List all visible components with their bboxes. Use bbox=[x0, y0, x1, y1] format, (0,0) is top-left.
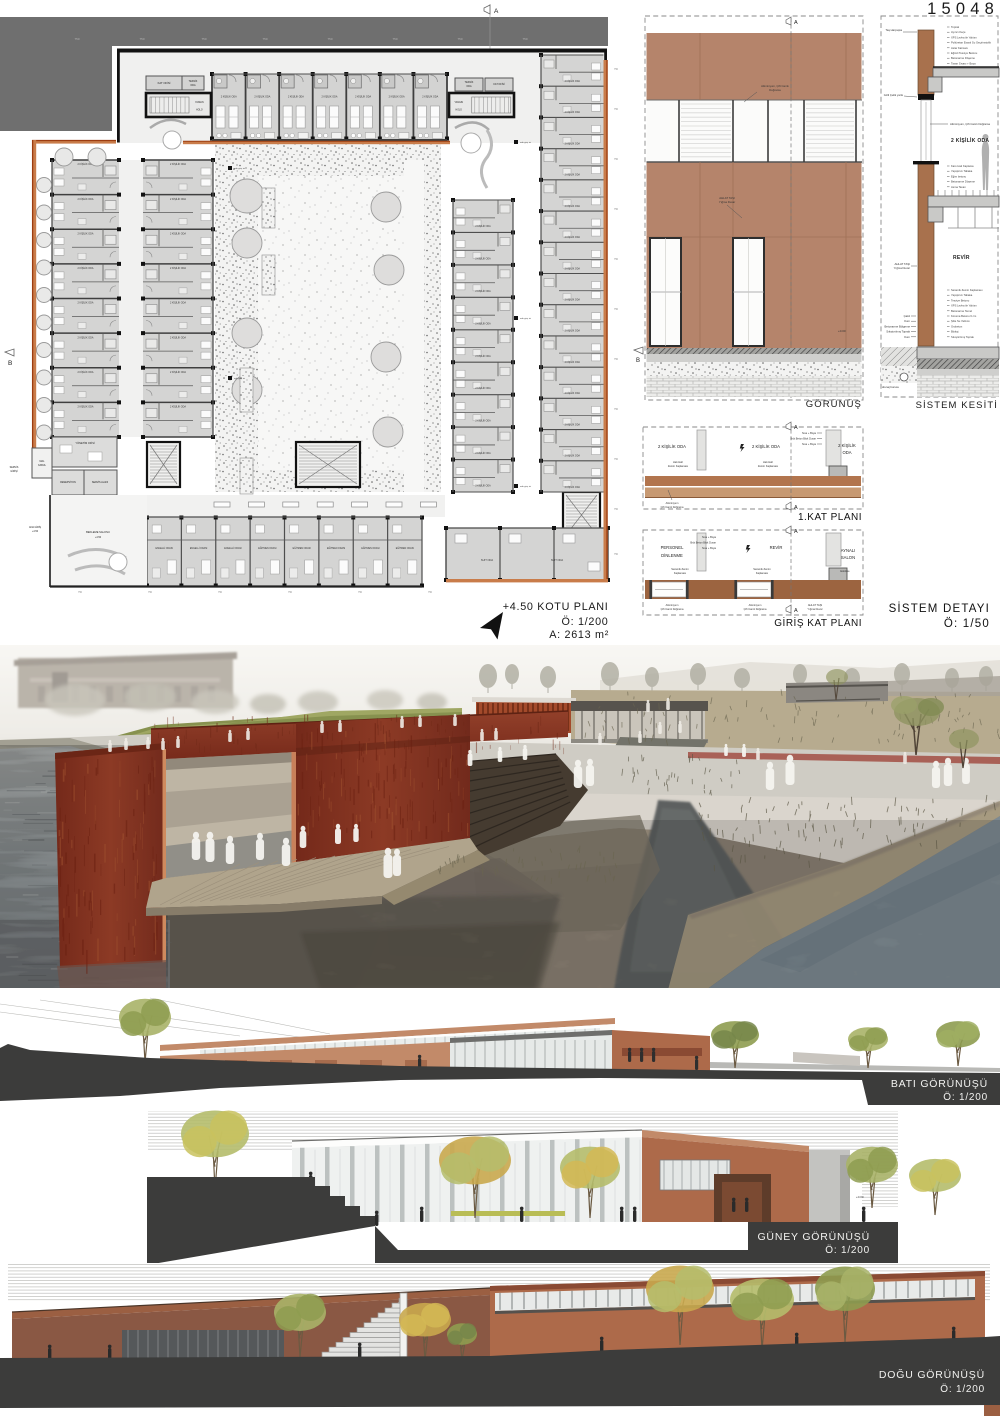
svg-text:750: 750 bbox=[139, 37, 144, 41]
svg-text:Çift Camlı Doğrama: Çift Camlı Doğrama bbox=[744, 607, 767, 611]
svg-text:ODA: ODA bbox=[466, 85, 472, 88]
svg-text:2 KİŞİLİK ODA: 2 KİŞİLİK ODA bbox=[389, 96, 405, 99]
svg-text:Gizli Çelik yarık: Gizli Çelik yarık bbox=[884, 93, 904, 97]
svg-text:750: 750 bbox=[74, 37, 79, 41]
svg-text:oda giriş izi: oda giriş izi bbox=[234, 377, 245, 380]
svg-text:Blokaj: Blokaj bbox=[951, 330, 959, 334]
svg-text:Alüminyum: Alüminyum bbox=[666, 501, 679, 505]
svg-text:Yığma Duvar: Yığma Duvar bbox=[894, 266, 910, 270]
svg-text:ODA: ODA bbox=[842, 450, 851, 455]
svg-text:EĞİTMEN ODASI: EĞİTMEN ODASI bbox=[361, 547, 380, 550]
svg-text:Sıva + Boya: Sıva + Boya bbox=[802, 442, 817, 446]
svg-text:750: 750 bbox=[201, 37, 206, 41]
svg-text:750: 750 bbox=[614, 508, 619, 511]
svg-text:Sıva + Boya: Sıva + Boya bbox=[702, 546, 717, 550]
svg-text:Brüt Beton Blok Duvar: Brüt Beton Blok Duvar bbox=[790, 437, 816, 441]
svg-text:Ö: 1/50: Ö: 1/50 bbox=[944, 618, 990, 630]
svg-text:EĞİTMEN ODASI: EĞİTMEN ODASI bbox=[293, 547, 312, 550]
svg-text:Kum: Kum bbox=[904, 335, 910, 339]
svg-text:15048: 15048 bbox=[927, 0, 999, 18]
svg-text:XPS Levha ile Yalıtım: XPS Levha ile Yalıtım bbox=[951, 35, 978, 39]
svg-text:2 KİŞİLİK ODA: 2 KİŞİLİK ODA bbox=[951, 137, 989, 144]
svg-text:ODA: ODA bbox=[190, 84, 196, 87]
svg-text:Çift Camlı Doğrama: Çift Camlı Doğrama bbox=[661, 607, 684, 611]
svg-text:2 KİŞİLİK ODA: 2 KİŞİLİK ODA bbox=[565, 174, 581, 177]
svg-text:A: 2613 m²: A: 2613 m² bbox=[549, 629, 609, 641]
svg-text:2 KİŞİLİK ODA: 2 KİŞİLİK ODA bbox=[475, 387, 491, 390]
svg-text:2 KİŞİLİK ODA: 2 KİŞİLİK ODA bbox=[170, 302, 186, 305]
svg-text:Karo Halı Kaplama: Karo Halı Kaplama bbox=[951, 164, 974, 168]
svg-text:oda giriş izi: oda giriş izi bbox=[520, 141, 531, 144]
svg-text:1.KAT PLANI: 1.KAT PLANI bbox=[798, 512, 862, 523]
svg-text:2 KİŞİLİK ODA: 2 KİŞİLİK ODA bbox=[170, 232, 186, 235]
svg-text:2 KİŞİLİK ODA: 2 KİŞİLİK ODA bbox=[565, 111, 581, 114]
svg-text:2 KİŞİLİK ODA: 2 KİŞİLİK ODA bbox=[78, 406, 94, 409]
svg-text:2 KİŞİLİK: 2 KİŞİLİK bbox=[838, 443, 856, 448]
svg-text:HOLÜ: HOLÜ bbox=[456, 108, 463, 111]
svg-text:Ö: 1/200: Ö: 1/200 bbox=[940, 1383, 985, 1395]
svg-text:Astar Katmanı: Astar Katmanı bbox=[951, 46, 968, 50]
svg-text:TEKNİK: TEKNİK bbox=[465, 81, 474, 84]
svg-text:Zemin Kaplaması: Zemin Kaplaması bbox=[668, 464, 688, 468]
svg-text:2 KİŞİLİK ODA: 2 KİŞİLİK ODA bbox=[170, 163, 186, 166]
svg-text:GÜNEY GÖRÜNÜŞÜ: GÜNEY GÖRÜNÜŞÜ bbox=[757, 1231, 870, 1243]
svg-text:2 KİŞİLİK ODA: 2 KİŞİLİK ODA bbox=[170, 336, 186, 339]
svg-text:750: 750 bbox=[78, 591, 83, 594]
svg-text:2 KİŞİLİK ODA: 2 KİŞİLİK ODA bbox=[78, 198, 94, 201]
svg-text:ANA GİRİŞ: ANA GİRİŞ bbox=[29, 526, 41, 529]
svg-text:Poliüretan Esaslı Su Geçirimsi: Poliüretan Esaslı Su Geçirimsizlik bbox=[951, 41, 992, 45]
svg-text:750: 750 bbox=[614, 108, 619, 111]
svg-text:AHLAT TAŞI: AHLAT TAŞI bbox=[808, 603, 823, 607]
svg-text:Seramik Zemin Kaplaması: Seramik Zemin Kaplaması bbox=[951, 288, 983, 292]
svg-text:2 KİŞİLİK ODA: 2 KİŞİLİK ODA bbox=[170, 406, 186, 409]
svg-text:2 KİŞİLİK ODA: 2 KİŞİLİK ODA bbox=[565, 205, 581, 208]
svg-text:oda giriş izi: oda giriş izi bbox=[520, 317, 531, 320]
svg-text:Sıkıştırılmış Toprak: Sıkıştırılmış Toprak bbox=[951, 335, 974, 339]
svg-text:2 KİŞİLİK ODA: 2 KİŞİLİK ODA bbox=[475, 257, 491, 260]
svg-text:2 KİŞİLİK ODA: 2 KİŞİLİK ODA bbox=[475, 420, 491, 423]
svg-text:KAT OFİSİ: KAT OFİSİ bbox=[493, 83, 505, 86]
svg-text:Grobeton: Grobeton bbox=[951, 324, 963, 328]
svg-text:SİSTEM KESİTİ: SİSTEM KESİTİ bbox=[916, 400, 998, 411]
svg-text:A: A bbox=[794, 20, 798, 26]
svg-text:REVİR: REVİR bbox=[953, 254, 970, 261]
svg-text:REVİR: REVİR bbox=[770, 545, 783, 550]
svg-text:750: 750 bbox=[522, 37, 527, 41]
svg-text:2 KİŞİLİK ODA: 2 KİŞİLİK ODA bbox=[565, 267, 581, 270]
svg-text:SERVİS: SERVİS bbox=[10, 466, 19, 469]
svg-text:A: A bbox=[794, 608, 798, 614]
svg-text:B: B bbox=[636, 358, 640, 364]
svg-text:Betonarme Döşeme: Betonarme Döşeme bbox=[951, 180, 975, 184]
svg-text:Betonarme Temel: Betonarme Temel bbox=[951, 309, 972, 313]
svg-text:Kaplaması: Kaplaması bbox=[674, 571, 687, 575]
svg-text:2 KİŞİLİK ODA: 2 KİŞİLİK ODA bbox=[565, 330, 581, 333]
svg-text:Ö: 1/200: Ö: 1/200 bbox=[561, 616, 608, 628]
svg-text:2 KİŞİLİK ODA: 2 KİŞİLİK ODA bbox=[565, 423, 581, 426]
svg-text:BATI GÖRÜNÜŞÜ: BATI GÖRÜNÜŞÜ bbox=[891, 1078, 988, 1090]
svg-text:Betonarme Döşeme: Betonarme Döşeme bbox=[951, 56, 975, 60]
svg-text:2 KİŞİLİK ODA: 2 KİŞİLİK ODA bbox=[565, 361, 581, 364]
svg-text:GİRİŞİ: GİRİŞİ bbox=[10, 470, 18, 473]
svg-text:Brüt Beton Blok Duvar: Brüt Beton Blok Duvar bbox=[690, 541, 716, 545]
svg-text:750: 750 bbox=[614, 208, 619, 211]
svg-text:2 KİŞİLİK ODA: 2 KİŞİLİK ODA bbox=[475, 225, 491, 228]
svg-text:Eğim betonu: Eğim betonu bbox=[951, 174, 967, 178]
svg-text:YANGIN: YANGIN bbox=[195, 101, 204, 104]
svg-text:HOLÜ: HOLÜ bbox=[196, 108, 203, 111]
svg-text:2 KİŞİLİK ODA: 2 KİŞİLİK ODA bbox=[355, 96, 371, 99]
svg-text:SİSTEM DETAYI: SİSTEM DETAYI bbox=[889, 602, 990, 615]
svg-text:Halı Hah: Halı Hah bbox=[763, 460, 774, 464]
svg-text:2 KİŞİLİK ODA: 2 KİŞİLİK ODA bbox=[221, 96, 237, 99]
svg-text:Halı Hah: Halı Hah bbox=[673, 460, 684, 464]
svg-text:Sıva + Boya: Sıva + Boya bbox=[802, 431, 817, 435]
svg-text:750: 750 bbox=[614, 358, 619, 361]
svg-text:SALON: SALON bbox=[841, 555, 855, 560]
svg-text:Zemin Kaplaması: Zemin Kaplaması bbox=[758, 464, 778, 468]
svg-text:2 KİŞİLİK ODA: 2 KİŞİLİK ODA bbox=[475, 290, 491, 293]
svg-text:ENGELLİ ODASI: ENGELLİ ODASI bbox=[224, 547, 242, 550]
svg-text:Doğrama: Doğrama bbox=[769, 88, 781, 92]
svg-text:Sıva + Boya: Sıva + Boya bbox=[702, 535, 717, 539]
svg-text:RESEPSİYON: RESEPSİYON bbox=[60, 481, 76, 484]
svg-text:Kum: Kum bbox=[904, 319, 910, 323]
svg-text:Betonarme Bölgeme: Betonarme Bölgeme bbox=[885, 324, 911, 328]
svg-text:Taş Harpuşta: Taş Harpuşta bbox=[886, 28, 903, 32]
svg-text:Tavan Sıvası + Boya: Tavan Sıvası + Boya bbox=[951, 61, 976, 65]
svg-text:A: A bbox=[494, 8, 499, 15]
svg-text:+4.50: +4.50 bbox=[32, 530, 39, 533]
svg-text:2 KİŞİLİK ODA: 2 KİŞİLİK ODA bbox=[254, 96, 270, 99]
svg-text:2 KİŞİLİK ODA: 2 KİŞİLİK ODA bbox=[170, 198, 186, 201]
svg-text:BEKLEME SALONU: BEKLEME SALONU bbox=[86, 530, 110, 534]
svg-text:750: 750 bbox=[614, 158, 619, 161]
svg-text:750: 750 bbox=[614, 68, 619, 71]
svg-text:Alüminyum, Çift Camlı Doğrama: Alüminyum, Çift Camlı Doğrama bbox=[950, 122, 990, 126]
svg-text:Yapıştırıcı Tabaka: Yapıştırıcı Tabaka bbox=[951, 293, 973, 297]
svg-text:750: 750 bbox=[614, 458, 619, 461]
svg-text:SERVİS ALANI: SERVİS ALANI bbox=[92, 481, 109, 484]
svg-text:750: 750 bbox=[614, 258, 619, 261]
svg-text:2 KİŞİLİK ODA: 2 KİŞİLİK ODA bbox=[475, 322, 491, 325]
svg-text:2 KİŞİLİK ODA: 2 KİŞİLİK ODA bbox=[565, 236, 581, 239]
svg-text:A: A bbox=[794, 505, 798, 511]
svg-text:2 KİŞİLİK ODA: 2 KİŞİLİK ODA bbox=[565, 455, 581, 458]
svg-text:2 KİŞİLİK ODA: 2 KİŞİLİK ODA bbox=[565, 392, 581, 395]
svg-text:2 KİŞİLİK ODA: 2 KİŞİLİK ODA bbox=[565, 486, 581, 489]
svg-text:2 KİŞİLİK ODA: 2 KİŞİLİK ODA bbox=[752, 444, 780, 449]
svg-text:TEKNİK: TEKNİK bbox=[189, 80, 198, 83]
svg-text:2 KİŞİLİK ODA: 2 KİŞİLİK ODA bbox=[78, 371, 94, 374]
svg-text:2 KİŞİLİK ODA: 2 KİŞİLİK ODA bbox=[78, 302, 94, 305]
svg-text:750: 750 bbox=[358, 591, 363, 594]
svg-text:Ayırıcı Keçe: Ayırıcı Keçe bbox=[951, 30, 966, 34]
svg-text:750: 750 bbox=[428, 591, 433, 594]
svg-text:PERSONEL: PERSONEL bbox=[661, 545, 684, 550]
svg-text:2 KİŞİLİK ODA: 2 KİŞİLİK ODA bbox=[170, 371, 186, 374]
svg-text:B: B bbox=[8, 360, 12, 367]
svg-text:Ö: 1/200: Ö: 1/200 bbox=[825, 1244, 870, 1256]
svg-text:SUIT ODA: SUIT ODA bbox=[551, 558, 563, 562]
svg-text:750: 750 bbox=[614, 553, 619, 556]
svg-text:2 KİŞİLİK ODA: 2 KİŞİLİK ODA bbox=[170, 267, 186, 270]
svg-text:EĞİTMEN ODASI: EĞİTMEN ODASI bbox=[396, 547, 415, 550]
svg-text:2 KİŞİLİK ODA: 2 KİŞİLİK ODA bbox=[288, 96, 304, 99]
svg-text:oda giriş izi: oda giriş izi bbox=[520, 485, 531, 488]
svg-text:Kaplaması: Kaplaması bbox=[756, 571, 769, 575]
svg-text:2 KİŞİLİK ODA: 2 KİŞİLİK ODA bbox=[475, 355, 491, 358]
svg-text:drenaj borusu: drenaj borusu bbox=[882, 385, 900, 389]
svg-text:DİNLENME: DİNLENME bbox=[661, 553, 683, 558]
svg-text:Tesviye Betonu: Tesviye Betonu bbox=[951, 298, 970, 302]
svg-text:GÖRÜNÜŞ: GÖRÜNÜŞ bbox=[806, 399, 862, 410]
svg-text:Eğimli Tesviye Betonu: Eğimli Tesviye Betonu bbox=[951, 51, 978, 55]
svg-text:750: 750 bbox=[392, 37, 397, 41]
svg-text:Yığma Duvar: Yığma Duvar bbox=[719, 200, 735, 204]
svg-text:Yapıştırıcı Tabaka: Yapıştırıcı Tabaka bbox=[951, 169, 973, 173]
svg-text:750: 750 bbox=[614, 408, 619, 411]
svg-text:2 KİŞİLİK ODA: 2 KİŞİLİK ODA bbox=[565, 299, 581, 302]
svg-text:2 KİŞİLİK ODA: 2 KİŞİLİK ODA bbox=[78, 267, 94, 270]
svg-text:A: A bbox=[794, 529, 798, 535]
svg-text:Toprak: Toprak bbox=[951, 25, 960, 29]
svg-text:+0.00: +0.00 bbox=[856, 1195, 864, 1199]
svg-text:EĞİTMEN ODASI: EĞİTMEN ODASI bbox=[327, 547, 346, 550]
svg-text:Seramik Zemin: Seramik Zemin bbox=[753, 567, 771, 571]
svg-text:750: 750 bbox=[457, 37, 462, 41]
svg-text:2 KİŞİLİK ODA: 2 KİŞİLİK ODA bbox=[565, 80, 581, 83]
svg-text:2 KİŞİLİK ODA: 2 KİŞİLİK ODA bbox=[78, 232, 94, 235]
svg-text:YANGIN: YANGIN bbox=[454, 101, 463, 104]
svg-text:750: 750 bbox=[327, 37, 332, 41]
svg-text:750: 750 bbox=[148, 591, 153, 594]
svg-text:DOĞU GÖRÜNÜŞÜ: DOĞU GÖRÜNÜŞÜ bbox=[879, 1368, 985, 1381]
svg-text:Alüminyum: Alüminyum bbox=[749, 603, 762, 607]
svg-text:+4.50 KOTU PLANI: +4.50 KOTU PLANI bbox=[503, 601, 609, 613]
svg-text:Eskitme: Eskitme bbox=[840, 569, 850, 573]
svg-text:oda giriş izi: oda giriş izi bbox=[234, 167, 245, 170]
svg-text:EĞİTMEN ODASI: EĞİTMEN ODASI bbox=[258, 547, 277, 550]
svg-text:750: 750 bbox=[288, 591, 293, 594]
svg-text:+4.50: +4.50 bbox=[95, 536, 102, 539]
svg-text:750: 750 bbox=[218, 591, 223, 594]
svg-text:+0.00: +0.00 bbox=[838, 329, 846, 333]
svg-text:Koruma Betonu 6 cm: Koruma Betonu 6 cm bbox=[951, 314, 977, 318]
svg-text:750: 750 bbox=[614, 308, 619, 311]
svg-text:ENGELLİ ODASI: ENGELLİ ODASI bbox=[190, 547, 208, 550]
svg-text:MAL: MAL bbox=[40, 460, 46, 463]
svg-text:2 KİŞİLİK ODA: 2 KİŞİLİK ODA bbox=[565, 142, 581, 145]
svg-text:2 KİŞİLİK ODA: 2 KİŞİLİK ODA bbox=[658, 444, 686, 449]
svg-text:2 KİŞİLİK ODA: 2 KİŞİLİK ODA bbox=[422, 96, 438, 99]
svg-text:2 KİŞİLİK ODA: 2 KİŞİLİK ODA bbox=[475, 485, 491, 488]
svg-text:A: A bbox=[794, 425, 798, 431]
svg-text:Ö: 1/200: Ö: 1/200 bbox=[943, 1091, 988, 1103]
svg-text:Asma Tavan: Asma Tavan bbox=[951, 185, 966, 189]
svg-text:Seramik Zemin: Seramik Zemin bbox=[671, 567, 689, 571]
svg-text:2 KİŞİLİK ODA: 2 KİŞİLİK ODA bbox=[78, 336, 94, 339]
svg-text:SUIT ODA: SUIT ODA bbox=[481, 558, 493, 562]
svg-text:Şilte Su Yalıtımı: Şilte Su Yalıtımı bbox=[951, 319, 970, 323]
svg-text:Alüminyum: Alüminyum bbox=[666, 603, 679, 607]
svg-text:Yığma Duvar: Yığma Duvar bbox=[807, 607, 822, 611]
svg-text:GİRİŞ KAT PLANI: GİRİŞ KAT PLANI bbox=[774, 616, 862, 629]
svg-text:2 KİŞİLİK ODA: 2 KİŞİLİK ODA bbox=[475, 452, 491, 455]
svg-text:XPS Levha ile Yalıtım: XPS Levha ile Yalıtım bbox=[951, 304, 978, 308]
svg-text:750: 750 bbox=[262, 37, 267, 41]
svg-text:AYNALI: AYNALI bbox=[841, 548, 856, 553]
svg-text:Sıkıştırılmış Toprak: Sıkıştırılmış Toprak bbox=[886, 330, 910, 334]
svg-text:Çakıl: Çakıl bbox=[904, 314, 911, 318]
svg-text:ENGELLİ ODASI: ENGELLİ ODASI bbox=[155, 547, 173, 550]
svg-text:Çift Camlı Doğrama: Çift Camlı Doğrama bbox=[661, 505, 684, 509]
svg-text:KABUL: KABUL bbox=[38, 464, 47, 467]
svg-text:2 KİŞİLİK ODA: 2 KİŞİLİK ODA bbox=[322, 96, 338, 99]
